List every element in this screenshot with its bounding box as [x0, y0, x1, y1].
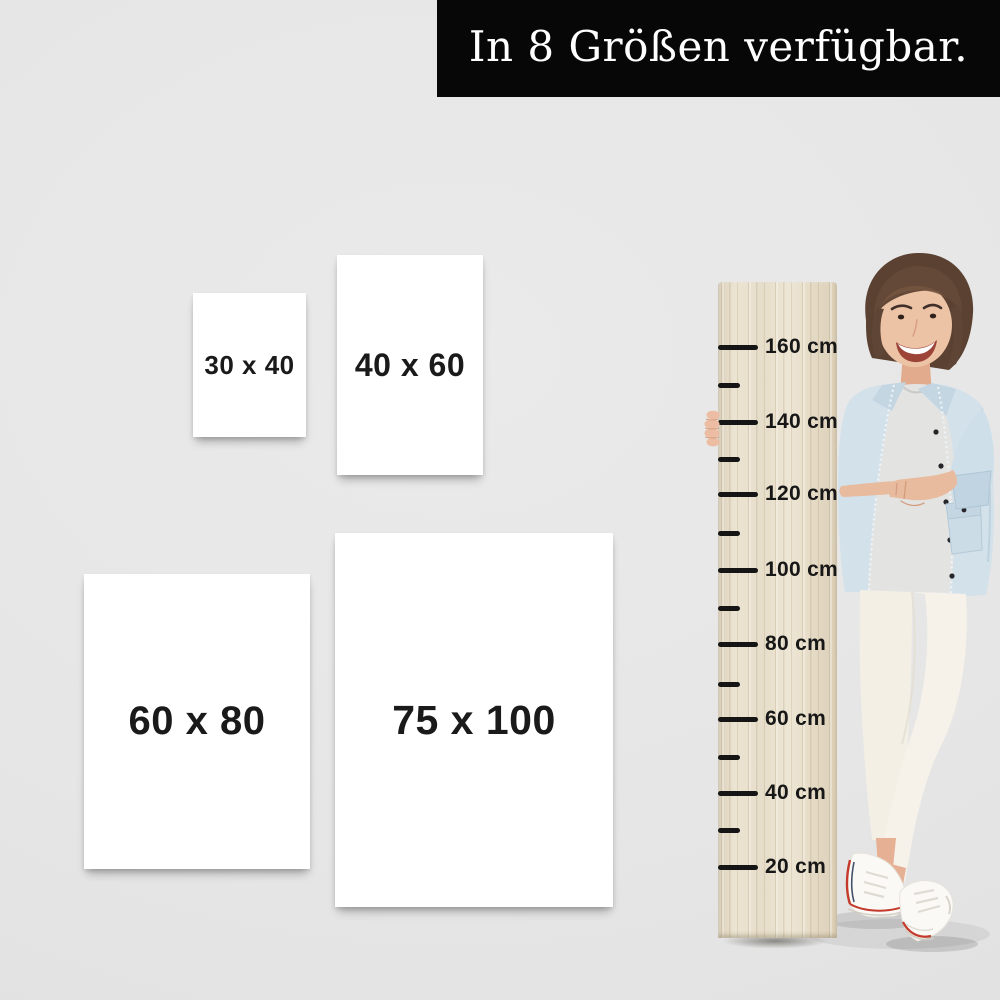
ruler-tick-160: [718, 345, 758, 350]
hand-holding-board: [700, 405, 726, 453]
ruler-label-140: 140 cm: [765, 411, 835, 433]
ruler-tick-50: [718, 755, 740, 760]
banner-text: In 8 Größen verfügbar.: [469, 22, 968, 71]
ruler-tick-60: [718, 717, 758, 722]
ruler-label-80: 80 cm: [765, 633, 835, 655]
size-label-40x60: 40 x 60: [355, 347, 465, 384]
growth-ruler-board: 160 cm 140 cm 120 cm 100 cm 80 cm 60 cm …: [718, 282, 837, 938]
ruler-tick-120: [718, 492, 758, 497]
ruler-tick-20: [718, 865, 758, 870]
size-label-30x40: 30 x 40: [204, 350, 294, 381]
pants: [860, 590, 967, 882]
size-card-30x40: 30 x 40: [193, 293, 306, 437]
ruler-label-60: 60 cm: [765, 708, 835, 730]
ruler-label-20: 20 cm: [765, 856, 835, 878]
ruler-label-100: 100 cm: [765, 559, 835, 581]
ruler-label-120: 120 cm: [765, 483, 835, 505]
size-card-75x100: 75 x 100: [335, 533, 613, 907]
ruler-tick-90: [718, 606, 740, 611]
size-card-60x80: 60 x 80: [84, 574, 310, 869]
ruler-tick-150: [718, 383, 740, 388]
gripping-fingers: [705, 411, 720, 447]
ruler-label-160: 160 cm: [765, 336, 835, 358]
ruler-tick-70: [718, 682, 740, 687]
ruler-tick-100: [718, 568, 758, 573]
ruler-tick-30: [718, 828, 740, 833]
ruler-tick-110: [718, 531, 740, 536]
ruler-tick-80: [718, 642, 758, 647]
product-size-infographic: In 8 Größen verfügbar. 30 x 40 40 x 60 6…: [0, 0, 1000, 1000]
ruler-tick-130: [718, 457, 740, 462]
ruler-tick-40: [718, 791, 758, 796]
size-label-60x80: 60 x 80: [129, 699, 266, 744]
availability-banner: In 8 Größen verfügbar.: [437, 0, 1000, 97]
size-card-40x60: 40 x 60: [337, 255, 483, 475]
size-label-75x100: 75 x 100: [392, 697, 556, 744]
ruler-label-40: 40 cm: [765, 782, 835, 804]
